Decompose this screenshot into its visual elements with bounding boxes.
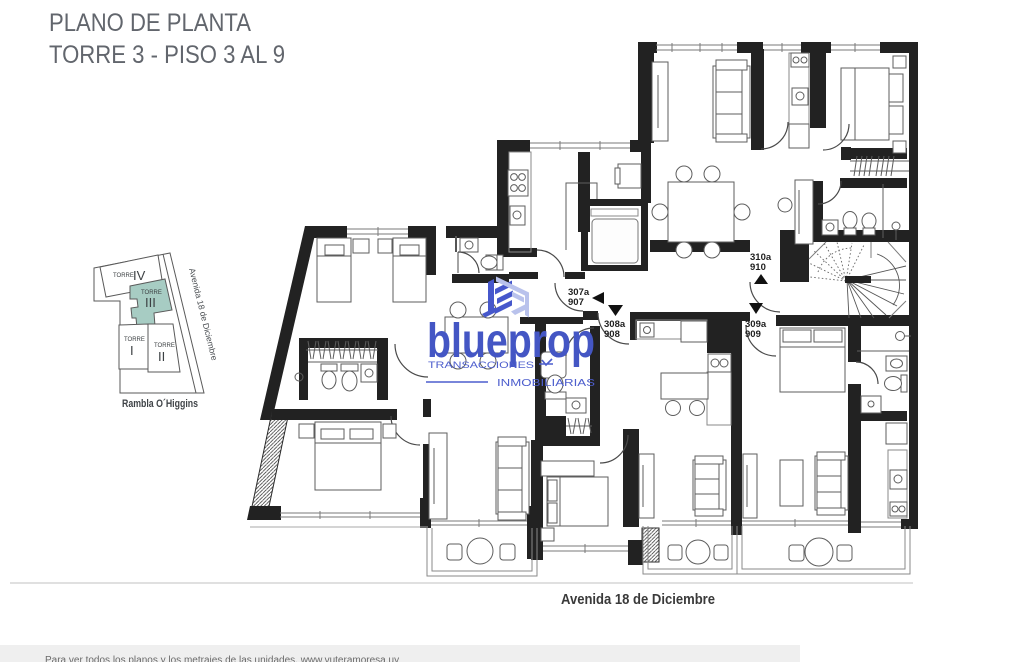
svg-text:TORRE: TORRE [124, 337, 145, 343]
svg-text:I: I [130, 343, 134, 358]
svg-text:II: II [158, 349, 165, 364]
svg-text:PLANO DE PLANTA: PLANO DE PLANTA [49, 9, 251, 37]
svg-text:INMOBILIARIAS: INMOBILIARIAS [497, 378, 595, 389]
svg-text:910: 910 [750, 262, 766, 273]
svg-text:Rambla O´Higgins: Rambla O´Higgins [122, 398, 198, 410]
svg-text:909: 909 [745, 329, 761, 340]
svg-text:907: 907 [568, 297, 584, 308]
svg-text:Avenida 18 de Diciembre: Avenida 18 de Diciembre [561, 592, 715, 608]
svg-text:TORRE: TORRE [113, 273, 134, 279]
svg-text:908: 908 [604, 329, 620, 340]
svg-text:TORRE 3 - PISO 3 AL 9: TORRE 3 - PISO 3 AL 9 [49, 41, 285, 69]
svg-text:III: III [145, 295, 156, 310]
svg-text:IV: IV [133, 268, 146, 283]
svg-text:TRANSACCIONES: TRANSACCIONES [428, 360, 534, 371]
